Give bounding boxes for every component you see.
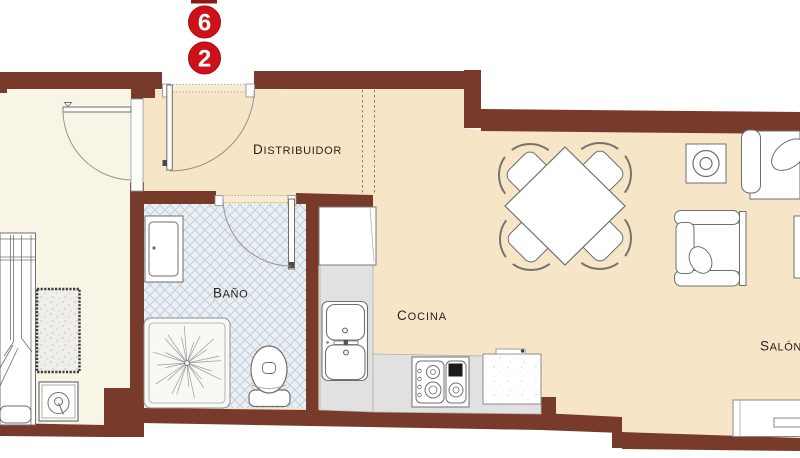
svg-text:SALÓN: SALÓN [760, 339, 800, 354]
svg-text:6: 6 [198, 10, 211, 37]
svg-text:2: 2 [198, 46, 211, 73]
svg-text:DISTRIBUIDOR: DISTRIBUIDOR [253, 142, 342, 157]
svg-text:COCINA: COCINA [397, 308, 447, 323]
svg-text:BAÑO: BAÑO [213, 286, 248, 301]
